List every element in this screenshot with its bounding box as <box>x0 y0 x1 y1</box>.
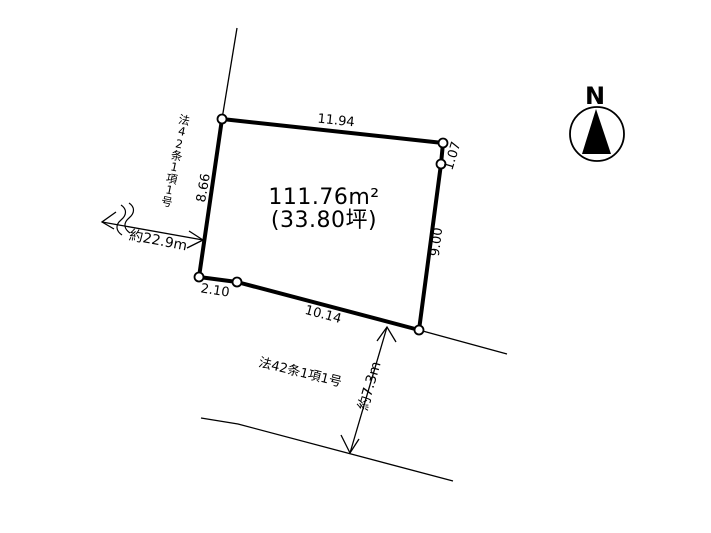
break-squiggle-1 <box>117 205 126 235</box>
edge-length-top: 11.94 <box>317 113 355 130</box>
compass-north-label: N <box>585 84 605 108</box>
survey-geometry <box>0 0 711 533</box>
boundary-extension-line <box>222 28 237 119</box>
edge-length-right: 9.00 <box>429 227 445 257</box>
parcel-area-sqm: 111.76m² <box>268 187 379 209</box>
north-needle-icon <box>582 109 611 154</box>
south-road-upper-edge <box>419 330 507 354</box>
south-road-width-arrowhead-bottom <box>341 435 359 453</box>
compass <box>570 107 624 161</box>
west-distance-arrowhead-left <box>102 212 116 229</box>
land-plot-survey-diagram: N 111.76m² (33.80坪) 11.94 1.07 9.00 10.1… <box>0 0 711 533</box>
vertex-marker-ne <box>439 139 448 148</box>
vertex-marker-nw <box>218 115 227 124</box>
vertex-marker-s-mid <box>233 278 242 287</box>
vertex-marker-sw <box>195 273 204 282</box>
vertex-marker-se <box>415 326 424 335</box>
parcel-area-tsubo: (33.80坪) <box>271 210 377 232</box>
south-road-lower-edge <box>201 418 453 481</box>
